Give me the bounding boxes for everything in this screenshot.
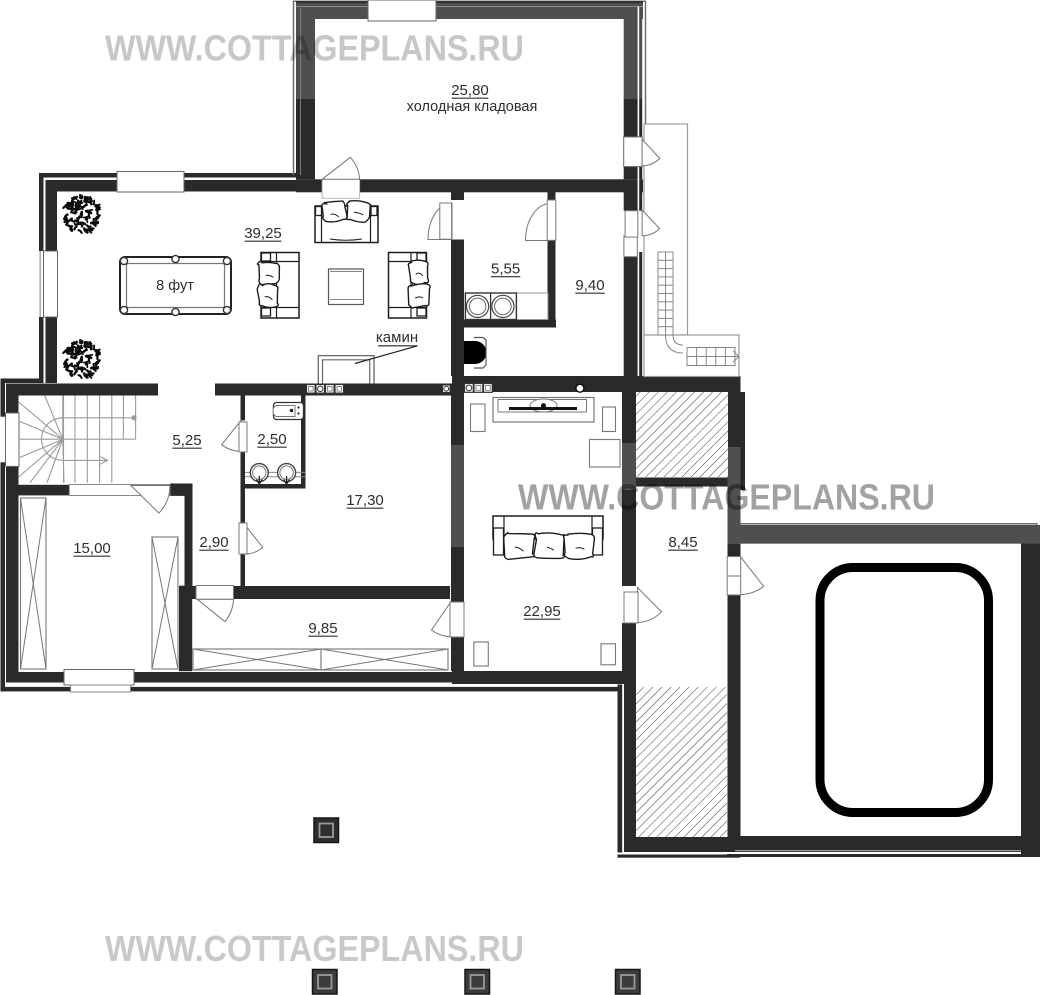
svg-text:5,25: 5,25 (172, 432, 201, 449)
svg-text:17,30: 17,30 (346, 492, 384, 509)
svg-text:WWW.COTTAGEPLANS.RU: WWW.COTTAGEPLANS.RU (518, 477, 935, 518)
svg-text:холодная кладовая: холодная кладовая (407, 99, 538, 115)
svg-text:8,45: 8,45 (668, 534, 697, 551)
svg-text:WWW.COTTAGEPLANS.RU: WWW.COTTAGEPLANS.RU (105, 28, 524, 69)
svg-text:22,95: 22,95 (523, 603, 561, 620)
svg-text:15,00: 15,00 (73, 540, 111, 557)
svg-text:25,80: 25,80 (451, 82, 489, 99)
svg-text:8 фут: 8 фут (156, 278, 194, 294)
svg-text:9,85: 9,85 (308, 620, 337, 637)
svg-text:5,55: 5,55 (491, 261, 520, 278)
svg-text:WWW.COTTAGEPLANS.RU: WWW.COTTAGEPLANS.RU (105, 928, 524, 969)
svg-text:2,50: 2,50 (257, 431, 286, 448)
svg-text:2,90: 2,90 (199, 534, 228, 551)
svg-text:39,25: 39,25 (244, 225, 282, 242)
svg-text:9,40: 9,40 (575, 277, 604, 294)
svg-text:камин: камин (376, 329, 418, 346)
